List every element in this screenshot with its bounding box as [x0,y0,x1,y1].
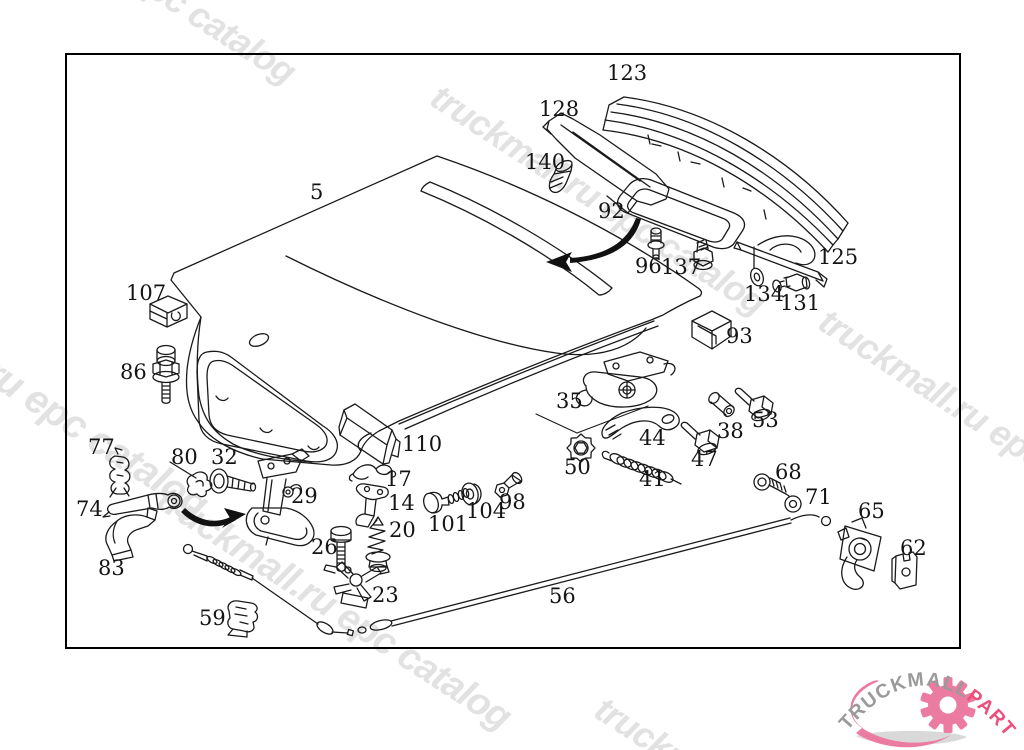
part-86-drawing [153,346,179,404]
part-107-drawing [150,296,187,327]
part-125-drawing [734,236,827,287]
arrow-92-head [546,252,572,272]
part-77-drawing [110,448,130,497]
part-59-drawing [228,601,258,637]
part-44-drawing [602,407,679,439]
part-71-drawing [785,496,801,512]
part-53-drawing [735,388,773,422]
part-74-drawing [103,493,182,517]
part-47-drawing [681,422,719,456]
part-62-drawing [892,552,917,589]
part-65-drawing [838,518,881,589]
direction-arrows [181,218,641,528]
part-98-drawing [495,471,524,497]
part-5-hood-drawing [171,156,701,465]
part-23-drawing [324,562,389,608]
part-131-drawing [772,274,811,293]
part-96-drawing [648,228,664,259]
parts-diagram-svg: TRUCKMALLPARTS [0,0,1024,750]
part-29-drawing [246,449,314,546]
part-83-drawing [106,508,157,561]
part-137-drawing [694,240,713,270]
part-14-drawing [356,484,388,527]
part-35-drawing [536,352,675,433]
part-92-drawing [618,179,745,249]
part-26-drawing [331,527,351,572]
arrow-92-to-hood [570,218,641,263]
part-17-drawing [349,465,395,481]
epc-diagram-page: truckmall.ru epc catalogtruckmall.ru epc… [0,0,1024,750]
part-80-drawing [170,462,212,497]
part-68-drawing [754,474,789,496]
part-123-drawing [603,97,848,252]
part-140-drawing [549,158,573,192]
part-41-drawing [602,451,681,484]
part-32-drawing [210,469,256,493]
arrow-74-head [222,508,246,528]
part-56-cable-drawing [184,515,831,637]
part-50-drawing [567,434,595,462]
part-93-drawing [692,311,731,349]
part-134-drawing [749,247,766,287]
part-38-drawing [707,391,737,419]
part-128-drawing [543,113,669,213]
